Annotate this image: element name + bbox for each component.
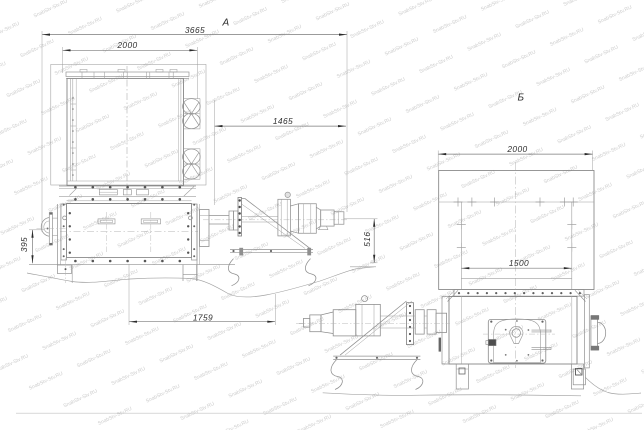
svg-text:1500: 1500 xyxy=(509,258,529,268)
svg-text:516: 516 xyxy=(362,232,372,247)
svg-text:2000: 2000 xyxy=(506,144,527,154)
svg-text:1465: 1465 xyxy=(273,116,293,126)
svg-text:Б: Б xyxy=(518,93,525,104)
svg-text:А: А xyxy=(221,18,229,29)
svg-text:1759: 1759 xyxy=(193,312,213,322)
svg-text:3665: 3665 xyxy=(185,25,205,35)
svg-text:2000: 2000 xyxy=(116,40,137,50)
svg-text:395: 395 xyxy=(19,237,29,252)
